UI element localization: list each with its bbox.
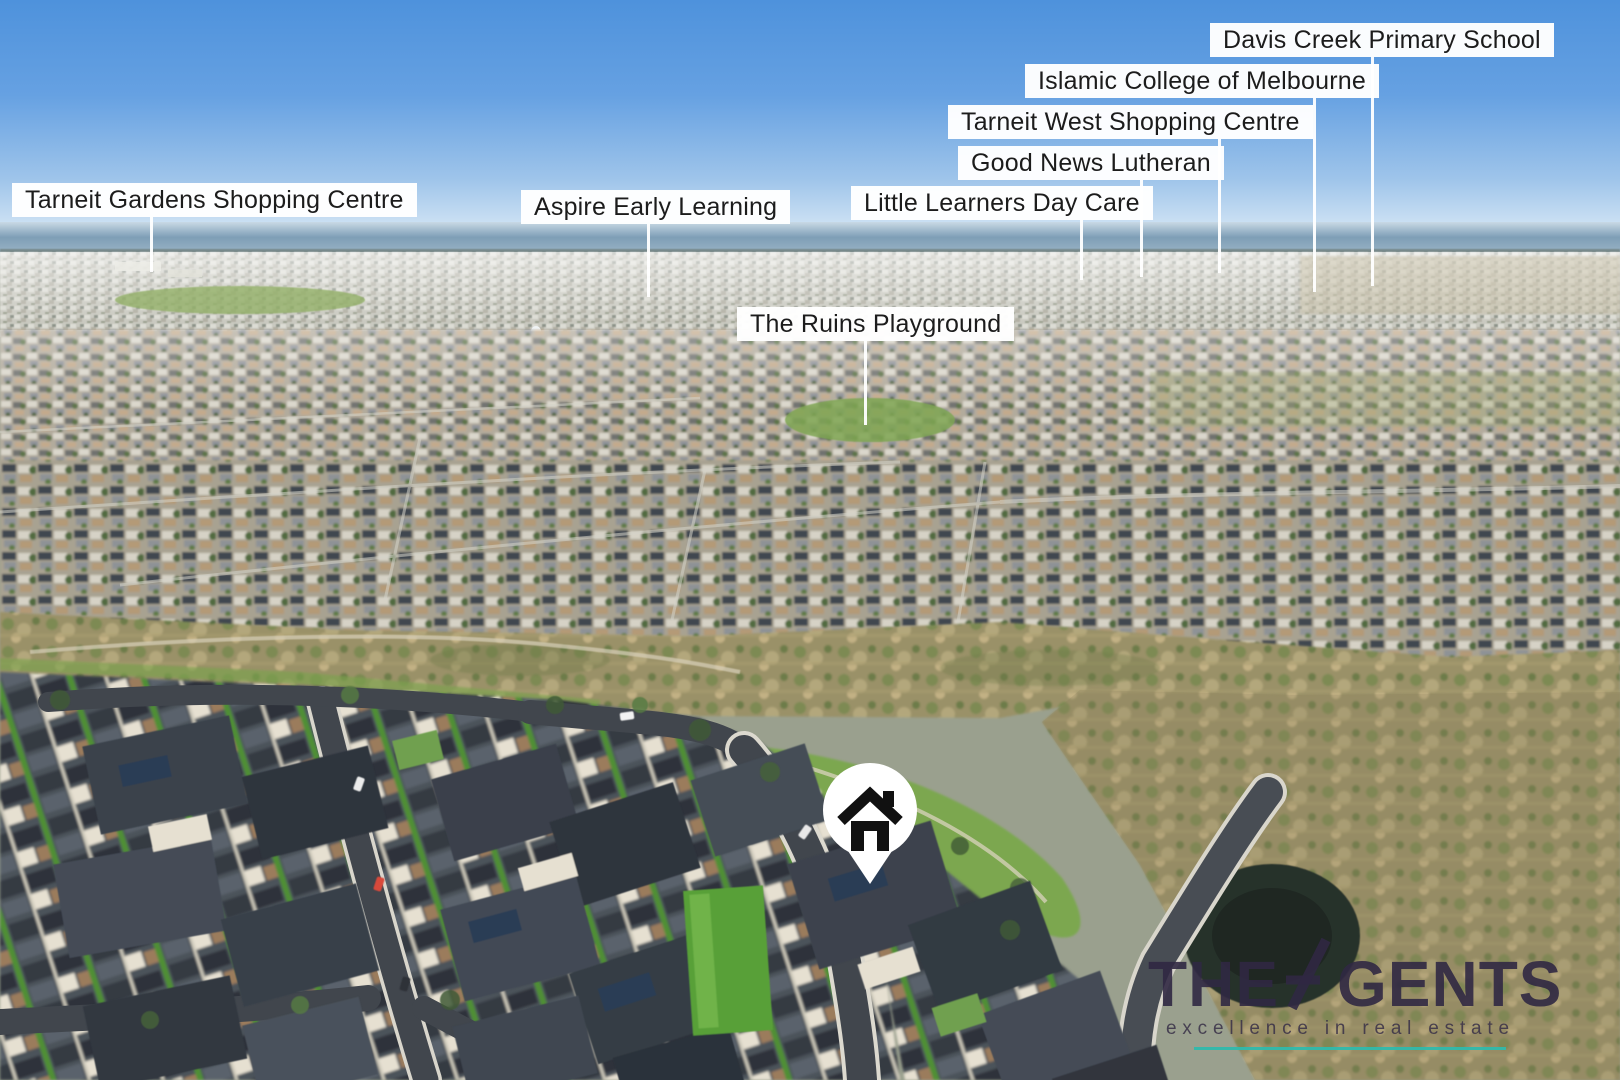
leader-line-aspire [647,224,650,297]
label-the-ruins-playground: The Ruins Playground [737,307,1014,341]
leader-line-little-learners [1080,220,1083,280]
stylized-a-icon [1284,938,1332,1010]
label-islamic-college-of-melbourne: Islamic College of Melbourne [1025,64,1379,98]
leader-line-tarneit-gardens [150,217,153,272]
label-tarneit-gardens-shopping-centre: Tarneit Gardens Shopping Centre [12,183,417,217]
leader-line-ruins-playground [864,341,867,425]
aerial-location-map: Tarneit Gardens Shopping Centre Aspire E… [0,0,1620,1080]
leader-line-islamic-college [1313,98,1316,292]
label-good-news-lutheran: Good News Lutheran [958,146,1224,180]
label-davis-creek-primary-school: Davis Creek Primary School [1210,23,1554,57]
logo-tagline: excellence in real estate [1148,1018,1562,1040]
house-pin-icon [818,758,922,886]
label-aspire-early-learning: Aspire Early Learning [521,190,790,224]
property-pin [818,758,922,886]
logo-underline [1194,1047,1506,1050]
agency-logo: THE GENTS excellence in real estate [1148,938,1562,1050]
aerial-photo-background [0,0,1620,1080]
logo-word-end: GENTS [1337,960,1562,1010]
label-tarneit-west-shopping-centre: Tarneit West Shopping Centre [948,105,1313,139]
logo-title: THE GENTS [1148,938,1562,1010]
logo-word-start: THE [1148,960,1279,1010]
middle-suburb [0,330,1620,675]
label-little-learners-day-care: Little Learners Day Care [851,186,1153,220]
